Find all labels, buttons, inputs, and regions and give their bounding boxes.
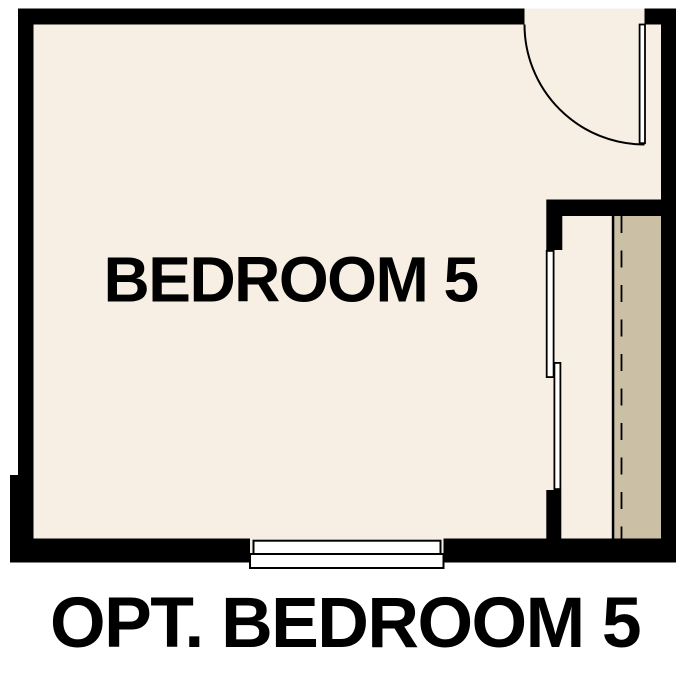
svg-text:OPT. BEDROOM 5: OPT. BEDROOM 5 [50, 583, 640, 663]
svg-text:BEDROOM 5: BEDROOM 5 [104, 244, 478, 316]
